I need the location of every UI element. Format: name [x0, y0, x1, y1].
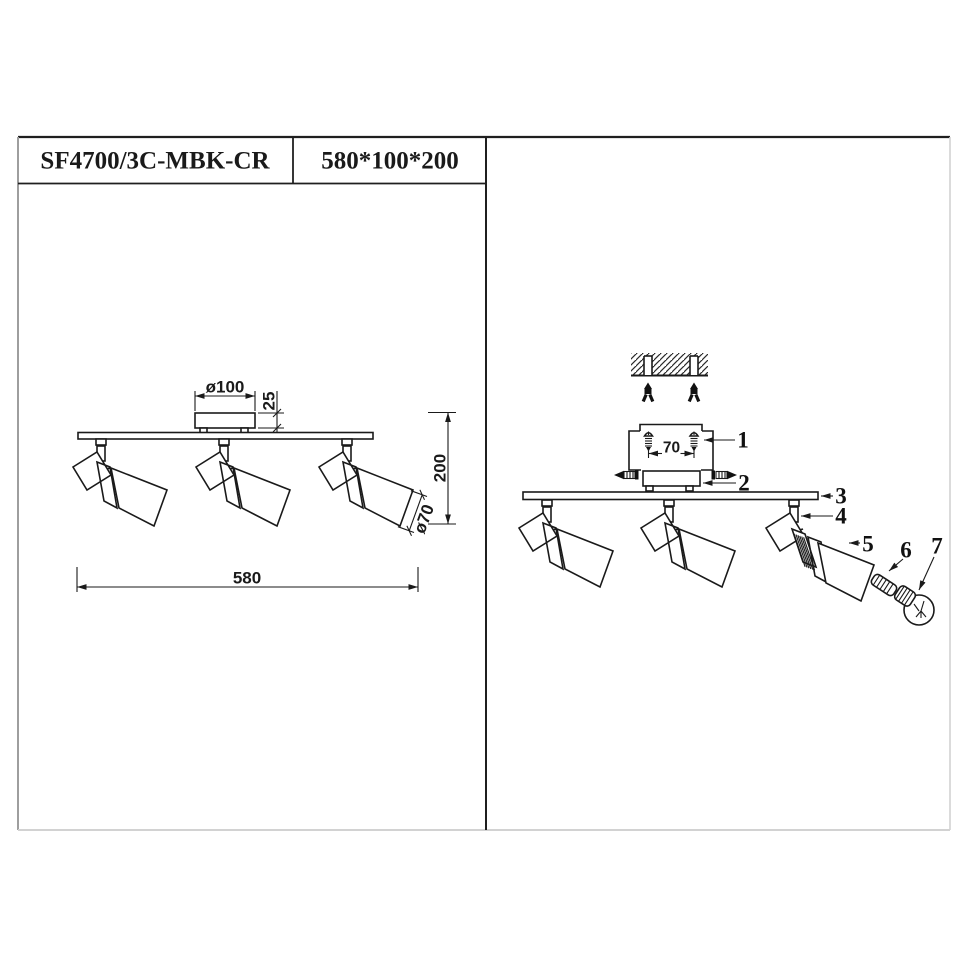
- dim-text-canopy-height: 25: [260, 392, 279, 411]
- svg-text:4: 4: [835, 504, 847, 529]
- spotlight-3: [319, 452, 413, 526]
- track-bar-install: [523, 492, 818, 500]
- canopy-install: [643, 471, 700, 491]
- canopy-front: [195, 413, 255, 433]
- swivel-stems-install: [542, 500, 799, 522]
- track-bar-front: [78, 433, 373, 440]
- spotlight-1: [73, 452, 167, 526]
- sheet-frame: [18, 137, 950, 830]
- part-label-7: 7: [919, 534, 943, 591]
- technical-drawing: SF4700/3C-MBK-CR 580*100*200: [0, 0, 970, 970]
- ceiling-section: [631, 353, 708, 376]
- bracket-screw-2: [690, 432, 698, 452]
- part-label-5: 5: [849, 532, 874, 557]
- drawing-sheet: SF4700/3C-MBK-CR 580*100*200: [0, 0, 970, 970]
- svg-text:5: 5: [862, 532, 874, 557]
- part-label-6: 6: [889, 538, 912, 572]
- overall-size: 580*100*200: [321, 148, 459, 175]
- side-screw-left: [614, 471, 639, 480]
- spotlight-2: [196, 452, 290, 526]
- dim-screw-spacing: 70: [649, 440, 695, 459]
- svg-text:1: 1: [737, 428, 749, 453]
- front-view: ø100 25 200 ø70: [73, 378, 456, 593]
- dim-text-shade-diameter: ø70: [410, 502, 438, 536]
- side-screw-right: [712, 471, 738, 480]
- drill-hole-1: [644, 356, 652, 375]
- svg-text:2: 2: [738, 471, 750, 496]
- spotlight-install-1: [519, 513, 613, 587]
- dim-overall-width: 580: [77, 567, 418, 592]
- dim-text-canopy-diameter: ø100: [206, 378, 245, 397]
- model-number: SF4700/3C-MBK-CR: [40, 148, 270, 175]
- dim-canopy-diameter: ø100: [195, 378, 255, 412]
- wall-anchor-2: [689, 383, 699, 402]
- dim-text-overall-width: 580: [233, 569, 261, 588]
- dim-text-screw-spacing: 70: [663, 440, 680, 457]
- dim-canopy-height: 25: [258, 391, 284, 432]
- title-block: SF4700/3C-MBK-CR 580*100*200: [18, 137, 486, 184]
- part-label-4: 4: [801, 504, 847, 529]
- threaded-ring: [870, 573, 898, 597]
- dim-text-overall-height: 200: [431, 454, 450, 482]
- drill-hole-2: [690, 356, 698, 375]
- svg-text:6: 6: [900, 538, 912, 563]
- wall-anchor-1: [643, 383, 653, 402]
- svg-text:7: 7: [931, 534, 943, 559]
- spotlight-install-2: [641, 513, 735, 587]
- install-view: 70: [519, 353, 943, 625]
- light-bulb: [893, 584, 934, 625]
- bracket-screw-1: [645, 432, 653, 452]
